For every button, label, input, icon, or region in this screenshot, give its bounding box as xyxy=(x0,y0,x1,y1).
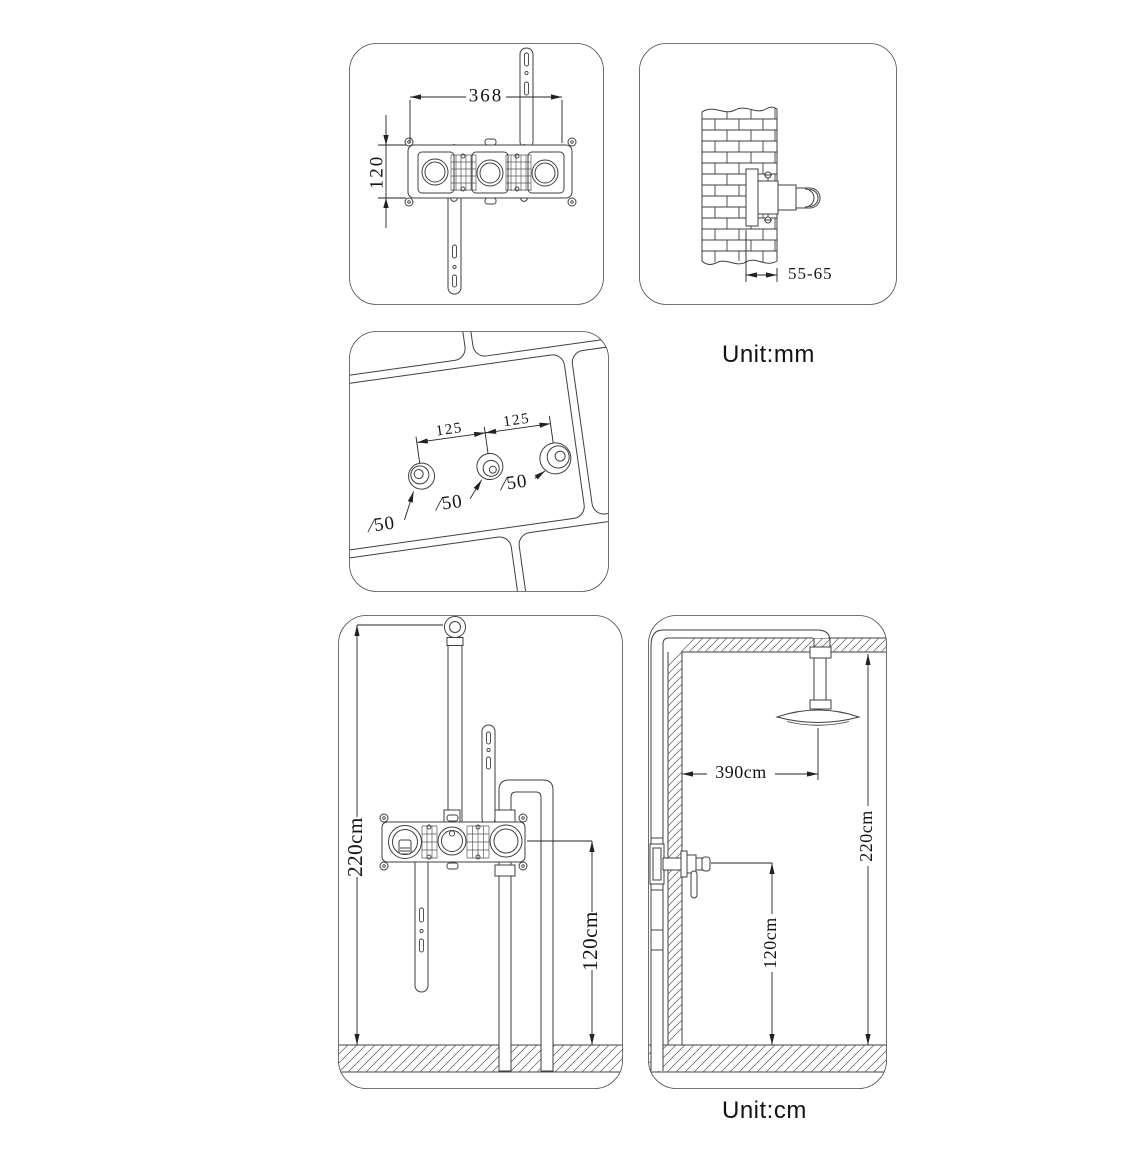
unit-label-mm: Unit:mm xyxy=(722,341,815,369)
shower-riser-pipe xyxy=(445,617,466,823)
dim-ceiling-height: 220cm xyxy=(856,654,876,1045)
dim-head-offset: 390cm xyxy=(682,728,818,782)
wall-section-panel: 55-65 xyxy=(638,42,898,306)
valve-handle-stub xyxy=(399,840,411,854)
mounting-strap-bottom xyxy=(448,192,461,294)
dim-height: 120 xyxy=(366,115,406,228)
dim-width: 368 xyxy=(410,85,562,143)
dim-valve-height-label: 120cm xyxy=(578,911,602,971)
valve-body-plate xyxy=(380,814,527,870)
floor xyxy=(647,1045,888,1072)
rain-shower-head xyxy=(777,647,859,725)
mounting-strap-top xyxy=(520,48,533,148)
dim-valve-height: 120cm xyxy=(527,841,602,1045)
dim-valve-height: 120cm xyxy=(711,863,780,1045)
mounting-strap-lower xyxy=(415,854,428,992)
valve-front-view-panel: 368 120 xyxy=(348,42,605,306)
dim-width-label: 368 xyxy=(469,85,504,106)
dim-head-offset-label: 390cm xyxy=(715,762,767,782)
installation-diagram-sheet: 368 120 xyxy=(0,0,1138,1153)
valve-stub-middle xyxy=(475,452,504,481)
dim-hole-mid-label: ∕50 xyxy=(432,491,464,516)
floor xyxy=(337,1045,624,1072)
mounting-strap-upper xyxy=(482,725,495,825)
dim-total-height-label: 220cm xyxy=(343,817,367,877)
room-section-panel: 390cm 220cm 120cm xyxy=(647,614,888,1090)
dim-depth-label: 55-65 xyxy=(788,264,833,283)
return-collar xyxy=(495,810,515,822)
ceiling xyxy=(667,638,888,652)
rough-in-elevation-panel: 220cm 120cm xyxy=(337,614,624,1090)
left-wall xyxy=(668,652,682,1045)
hand-shower-drop-pipe xyxy=(495,862,515,1071)
embedded-valve-section xyxy=(746,169,820,226)
dim-height-label: 120 xyxy=(366,155,387,190)
unit-label-cm: Unit:cm xyxy=(722,1097,807,1125)
wall-valve xyxy=(650,838,710,898)
tile-hole-layout-panel: 125 125 ∕50 ∕50 ∕50 xyxy=(348,330,610,593)
valve-stub-left xyxy=(407,461,436,490)
dim-hole-left-label: ∕50 xyxy=(365,512,397,537)
dim-valve-height-label: 120cm xyxy=(760,917,780,969)
valve-body-plate xyxy=(405,138,576,206)
valve-stub-right xyxy=(538,441,573,476)
hole-diameter-callouts: ∕50 ∕50 ∕50 xyxy=(361,468,550,537)
dim-ceiling-height-label: 220cm xyxy=(856,810,876,862)
dim-hole-right-label: ∕50 xyxy=(497,471,529,496)
